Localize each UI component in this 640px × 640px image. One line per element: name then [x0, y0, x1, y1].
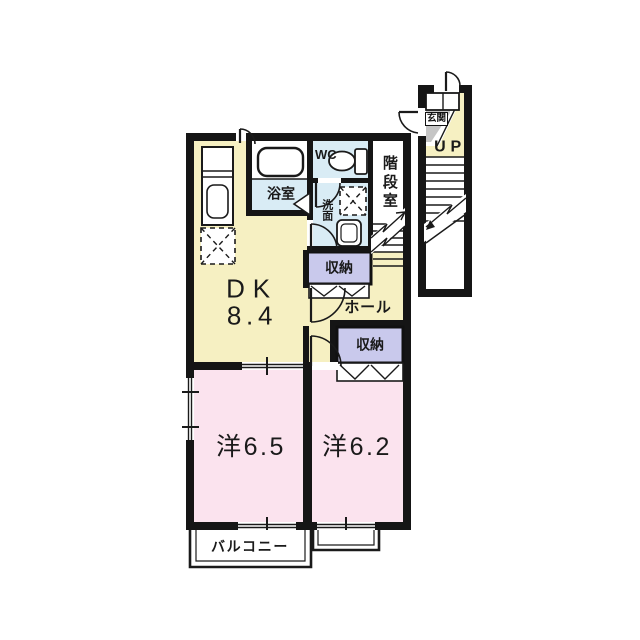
room-label-hall: ホール	[344, 300, 391, 316]
refrigerator-area	[201, 228, 235, 264]
floorplan-canvas: DK 8.4 洋6.5 洋6.2 浴室 WC 洗面 階段室 収納 収納 ホール …	[0, 0, 640, 640]
room-label-dk: DK 8.4	[226, 276, 278, 331]
room-label-washroom: 洗面	[320, 199, 332, 221]
stairs-up-label: UP	[434, 140, 466, 157]
room-label-west1: 洋6.5	[216, 434, 286, 460]
room-label-west2: 洋6.2	[322, 434, 392, 460]
bathtub-icon	[258, 148, 303, 176]
room-label-balcony: バルコニー	[211, 540, 289, 555]
kitchen-sink	[207, 185, 228, 218]
room-label-stairhall: 階段室	[381, 155, 397, 211]
room-label-bath: 浴室	[267, 187, 295, 202]
room-label-wc: WC	[315, 147, 329, 162]
floorplan-drawing	[0, 0, 640, 640]
dk-name: DK	[226, 276, 278, 303]
window-west1-left	[186, 378, 194, 440]
door-arc-entry-top	[446, 72, 460, 86]
room-label-entrance: 玄関	[425, 112, 448, 126]
step-outline	[313, 530, 379, 550]
toilet-tank	[355, 149, 367, 174]
dk-area: 8.4	[226, 303, 278, 330]
room-label-closet-upper: 収納	[325, 261, 353, 276]
sliding-door-dk-west1	[242, 362, 303, 370]
closet-lower-group	[337, 327, 403, 381]
room-label-closet-lower: 収納	[356, 338, 384, 353]
door-arc-entry-left	[399, 112, 418, 133]
